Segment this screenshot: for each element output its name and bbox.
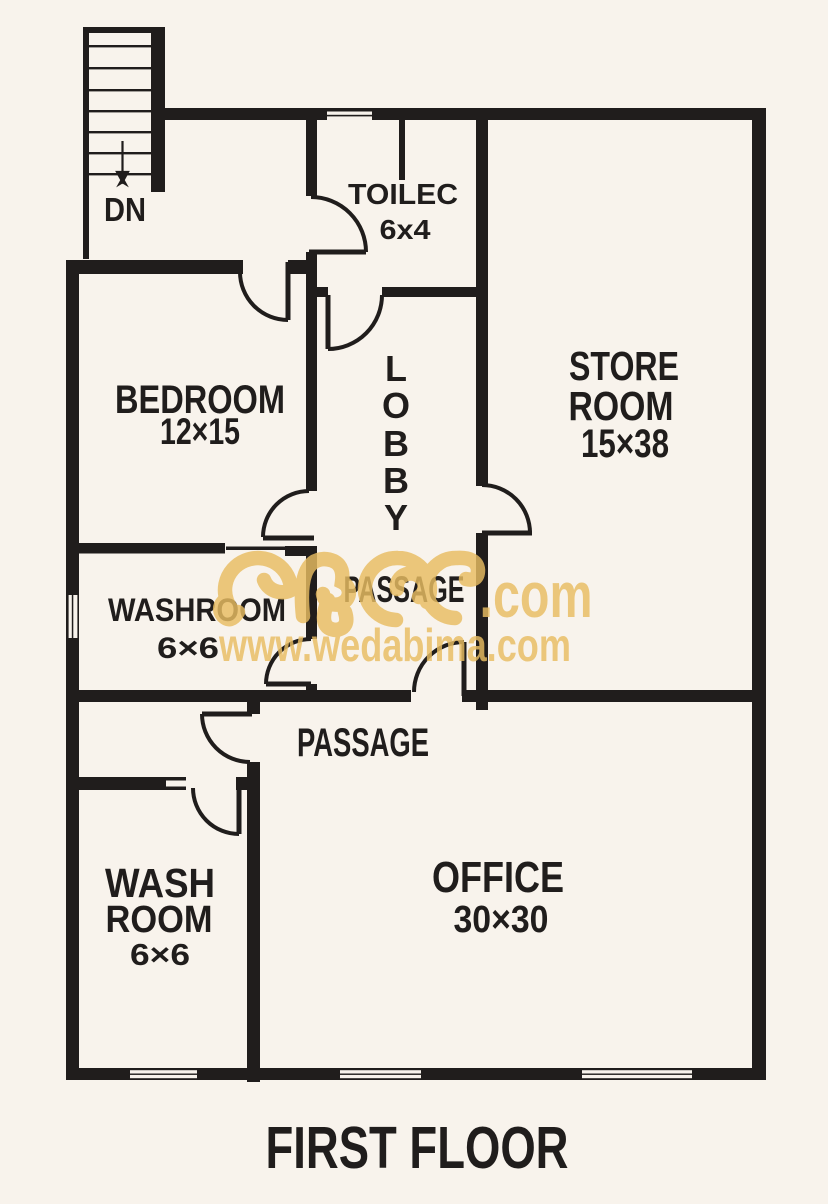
svg-text:FIRST FLOOR: FIRST FLOOR: [266, 1115, 569, 1181]
svg-text:OFFICE: OFFICE: [432, 853, 564, 902]
svg-text:30×30: 30×30: [454, 899, 549, 941]
svg-text:L: L: [385, 348, 407, 389]
svg-text:6x4: 6x4: [380, 214, 431, 245]
svg-text:Y: Y: [384, 497, 408, 538]
svg-text:B: B: [383, 460, 409, 501]
svg-text:6×6: 6×6: [157, 632, 219, 665]
svg-text:PASSAGE: PASSAGE: [297, 721, 429, 765]
svg-text:O: O: [382, 385, 410, 426]
svg-text:ROOM: ROOM: [106, 899, 213, 941]
svg-text:B: B: [383, 423, 409, 464]
svg-text:DN: DN: [104, 191, 146, 228]
svg-text:12×15: 12×15: [160, 411, 240, 452]
svg-text:www.wedabima.com: www.wedabima.com: [218, 619, 571, 671]
svg-text:TOILEC: TOILEC: [348, 179, 458, 211]
svg-text:15×38: 15×38: [581, 422, 669, 466]
svg-text:6×6: 6×6: [130, 937, 190, 972]
